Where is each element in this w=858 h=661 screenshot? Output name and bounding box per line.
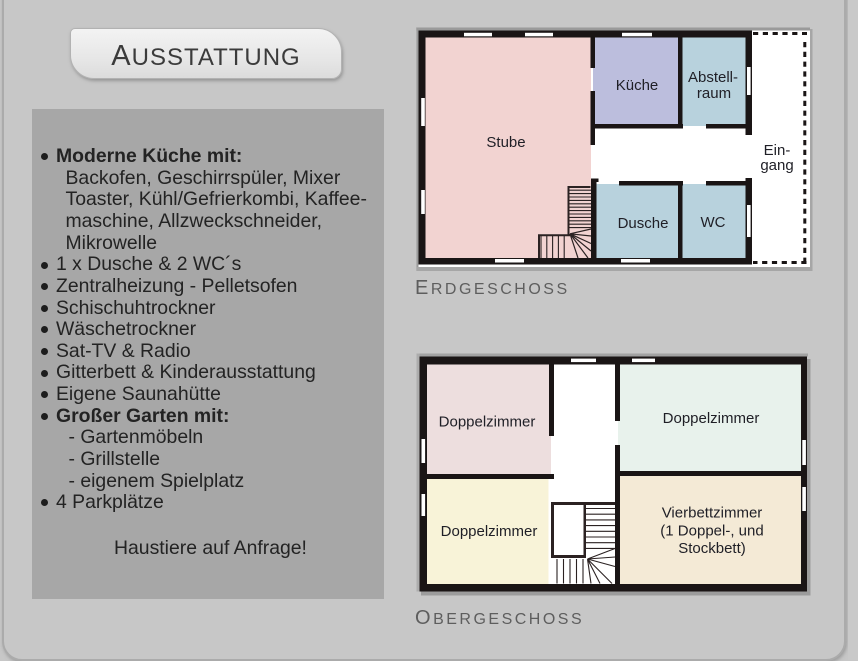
svg-text:WC: WC bbox=[701, 214, 726, 231]
svg-text:Stockbett): Stockbett) bbox=[678, 540, 746, 557]
svg-text:Abstell-: Abstell- bbox=[688, 69, 738, 86]
svg-text:Vierbettzimmer: Vierbettzimmer bbox=[662, 505, 763, 522]
svg-text:Dusche: Dusche bbox=[618, 215, 669, 232]
svg-text:Stube: Stube bbox=[486, 134, 525, 151]
svg-text:Doppelzimmer: Doppelzimmer bbox=[441, 523, 538, 540]
svg-text:(1 Doppel-, und: (1 Doppel-, und bbox=[660, 523, 763, 540]
svg-text:Doppelzimmer: Doppelzimmer bbox=[663, 410, 760, 427]
svg-text:gang: gang bbox=[760, 157, 793, 174]
svg-text:Küche: Küche bbox=[616, 77, 659, 94]
svg-text:raum: raum bbox=[697, 85, 731, 102]
svg-text:Doppelzimmer: Doppelzimmer bbox=[439, 414, 536, 431]
